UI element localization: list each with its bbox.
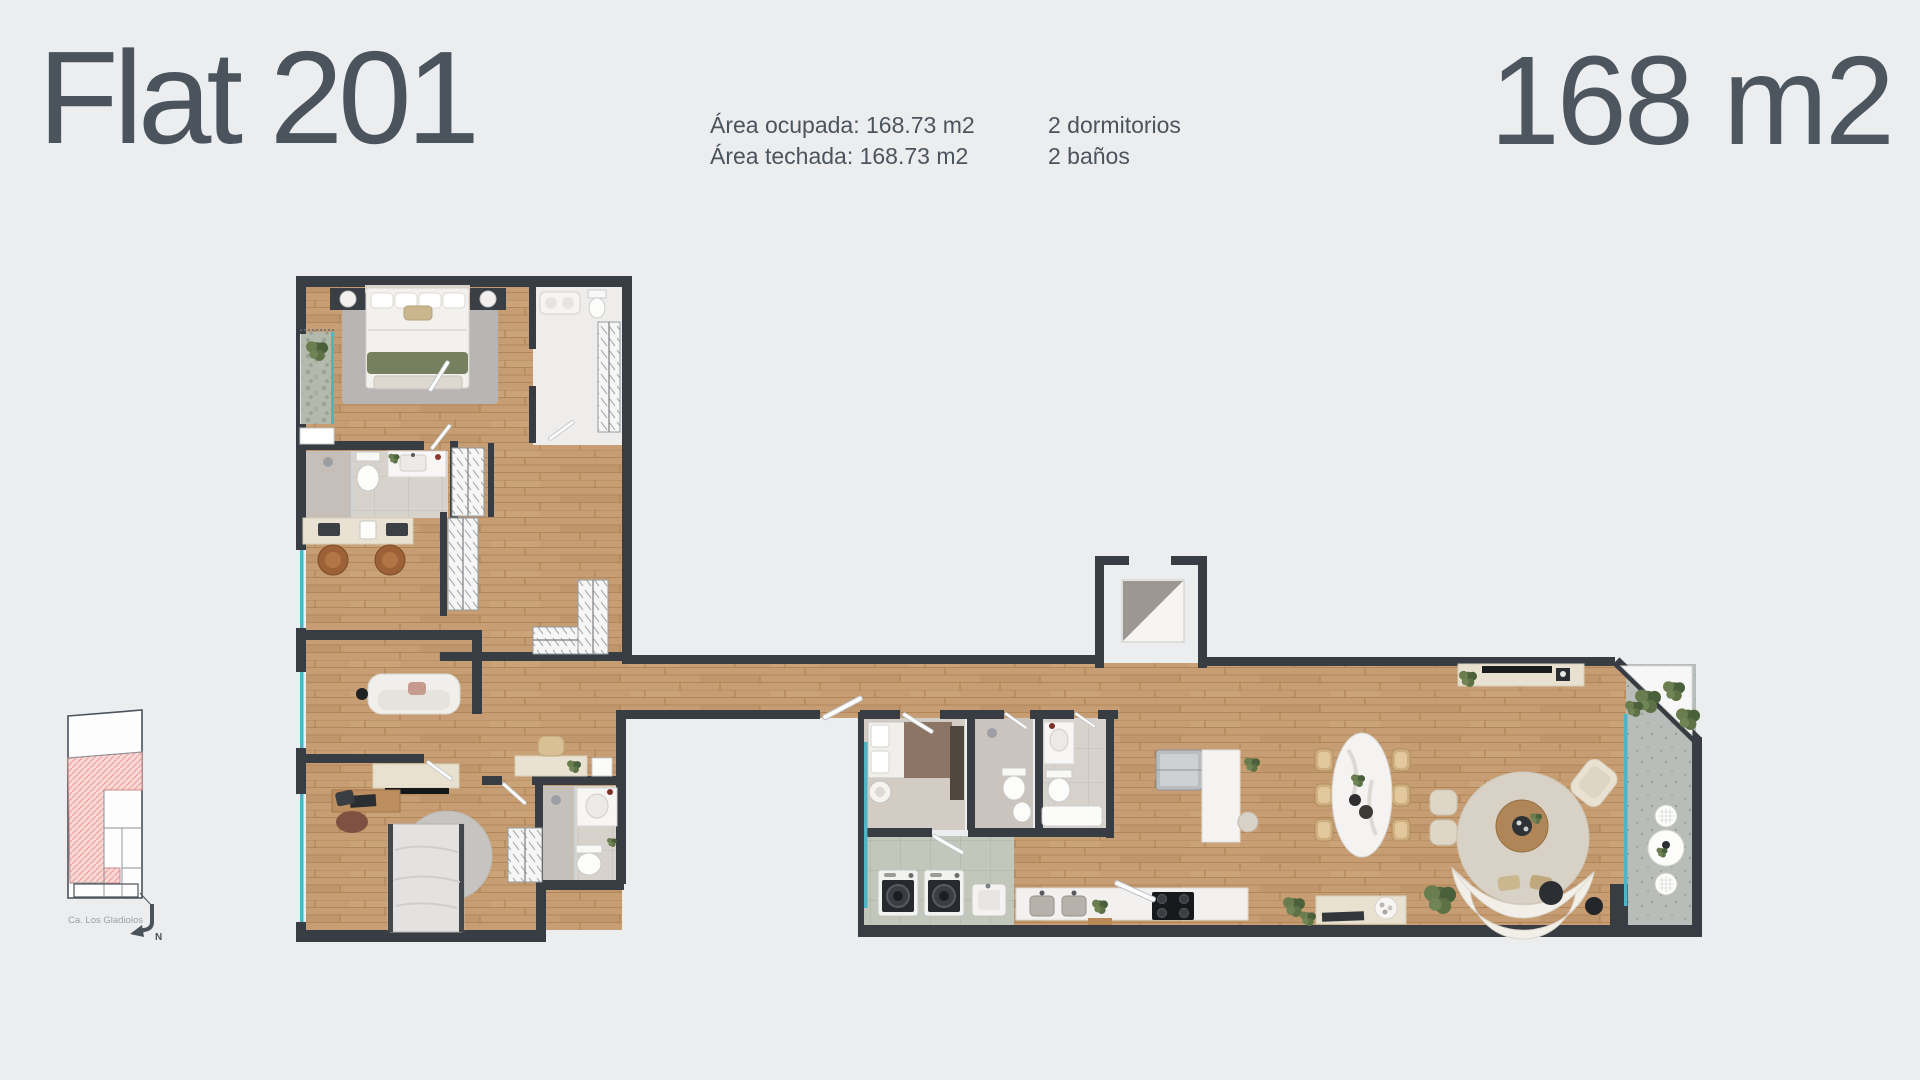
stool	[1238, 812, 1258, 832]
wardrobe	[950, 726, 964, 800]
bed2	[388, 824, 464, 932]
floor-lamp	[356, 688, 368, 700]
toilet-bowl	[577, 853, 601, 875]
lamp	[340, 291, 356, 307]
toilet-bowl	[357, 465, 379, 491]
tv	[1482, 666, 1552, 673]
wall-niche	[300, 428, 334, 444]
elevator	[1122, 580, 1184, 642]
sitting-nook	[356, 674, 460, 714]
pouf	[1430, 820, 1457, 845]
kitchen-sink	[1062, 896, 1086, 916]
key-plan: Ca. Los Gladiolos N	[68, 710, 162, 943]
media-sideboard	[1458, 664, 1584, 687]
toilet-tank	[588, 290, 606, 298]
laptop	[1322, 911, 1364, 921]
dining-area	[1315, 733, 1410, 857]
toilet-tank	[356, 452, 380, 461]
washing-machine	[878, 870, 918, 916]
washing-machine	[924, 870, 964, 916]
sink-basin	[400, 455, 426, 471]
stove	[1152, 892, 1194, 920]
shower-head	[323, 457, 333, 467]
toilet-bowl	[1048, 778, 1070, 802]
north-label: N	[155, 932, 162, 943]
toilet-tank	[576, 845, 602, 853]
chair	[538, 736, 564, 756]
dining-table	[1332, 733, 1392, 857]
console-table	[1316, 896, 1406, 924]
kitchen-sink	[1030, 896, 1054, 916]
lamp	[480, 291, 496, 307]
side-table	[1585, 897, 1603, 915]
bidet	[1013, 802, 1031, 822]
shower-head	[987, 728, 997, 738]
unit-highlight-nub	[104, 868, 120, 883]
master-bed	[365, 285, 470, 389]
pouf	[1430, 790, 1457, 815]
coffee-table	[1496, 800, 1548, 852]
floor-plan-graphic: Ca. Los Gladiolos N	[0, 0, 1920, 1080]
fridge	[1156, 750, 1202, 790]
counter-peninsula	[1202, 750, 1240, 842]
street-label: Ca. Los Gladiolos	[68, 915, 143, 926]
shower-head	[551, 795, 561, 805]
side-table	[1539, 881, 1563, 905]
floor-plan-sheet: { "header": { "title": "Flat 201", "area…	[0, 0, 1920, 1080]
toilet-bowl	[589, 298, 605, 318]
tub-counter	[1042, 806, 1102, 826]
toilet-bowl	[1003, 776, 1025, 800]
cutting-board	[1088, 918, 1112, 925]
armchair-pouf	[336, 811, 368, 833]
